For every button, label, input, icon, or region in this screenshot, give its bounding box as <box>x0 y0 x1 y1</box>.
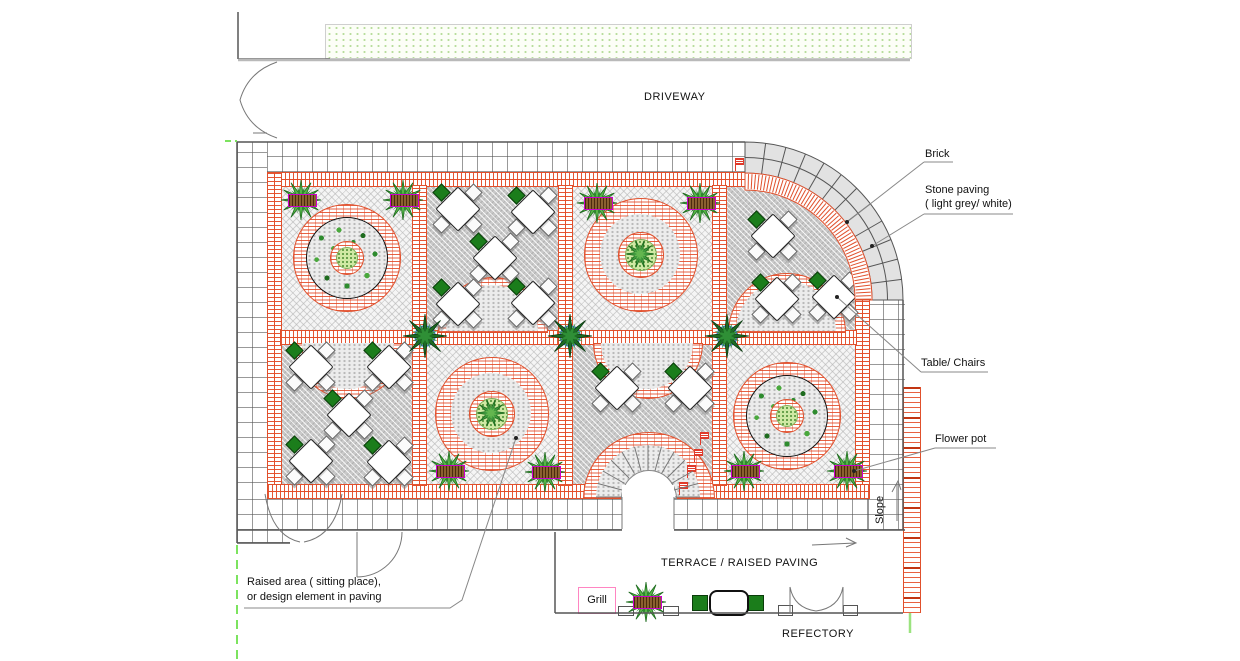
circle-center-plant <box>625 239 655 269</box>
intersection-plant <box>547 313 593 364</box>
circle-motif <box>776 405 798 427</box>
flower-pot <box>834 465 863 478</box>
intersection-plant <box>402 313 448 364</box>
flower-pot <box>532 466 561 479</box>
landscape-plan-drawing: DRIVEWAY Grill TERRACE / <box>0 0 1240 661</box>
dimension-marker <box>679 482 688 495</box>
dimension-marker <box>694 449 703 462</box>
flower-pot <box>633 596 662 609</box>
dimension-marker <box>735 158 744 171</box>
circle-center-plant <box>476 398 506 433</box>
intersection-plant <box>547 313 593 359</box>
dimension-marker <box>700 432 709 445</box>
flower-pot <box>390 194 419 207</box>
circle-center-plant <box>476 398 506 428</box>
flower-pot <box>687 197 716 210</box>
circle-center-plant <box>625 239 655 274</box>
dimension-marker <box>822 181 831 194</box>
flower-pot <box>584 197 613 210</box>
furniture-layer <box>0 0 1240 661</box>
dimension-marker <box>687 465 696 478</box>
circle-motif <box>336 247 358 269</box>
flower-pot <box>288 194 317 207</box>
flower-pot <box>436 465 465 478</box>
intersection-plant <box>402 313 448 359</box>
flower-pot <box>731 465 760 478</box>
intersection-plant <box>704 313 750 359</box>
dimension-marker <box>851 215 860 228</box>
intersection-plant <box>704 313 750 364</box>
dimension-marker <box>757 151 766 164</box>
dimension-marker <box>838 198 847 211</box>
dimension-marker <box>806 166 815 179</box>
arch-opening <box>622 485 674 530</box>
